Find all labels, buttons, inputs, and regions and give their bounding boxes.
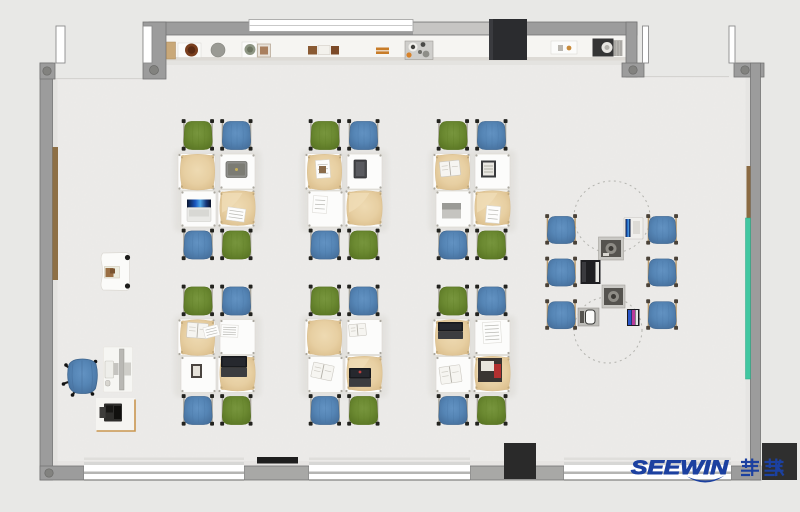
svg-text:SEEWIN: SEEWIN bbox=[631, 458, 730, 479]
